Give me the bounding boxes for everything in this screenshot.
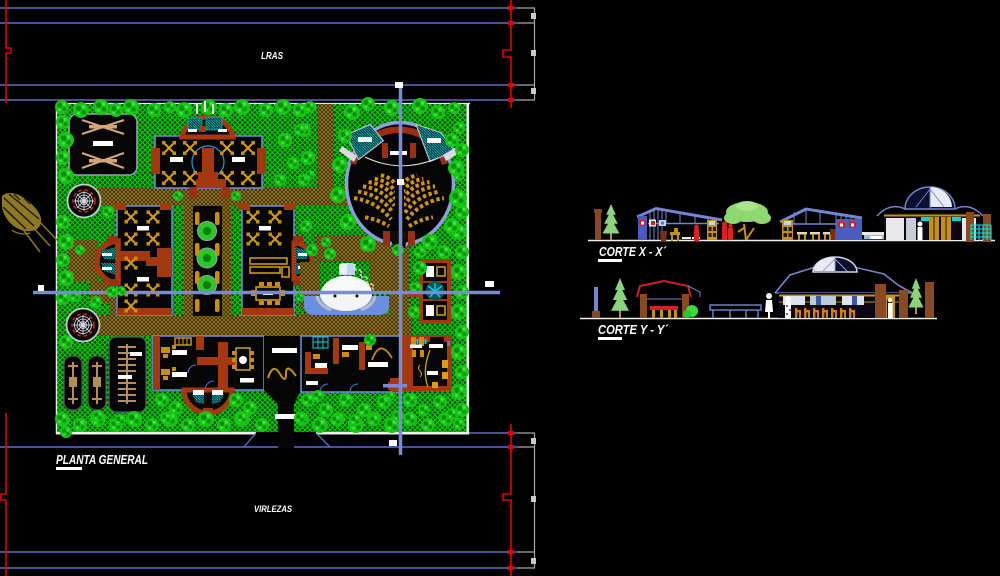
svg-text:LRAS: LRAS [261, 51, 283, 62]
svg-text:PLANTA GENERAL: PLANTA GENERAL [56, 453, 148, 467]
svg-text:CORTE Y - Y´: CORTE Y - Y´ [598, 323, 669, 337]
svg-text:VIRLEZAS: VIRLEZAS [254, 504, 293, 515]
svg-text:CORTE X - X´: CORTE X - X´ [599, 245, 667, 259]
